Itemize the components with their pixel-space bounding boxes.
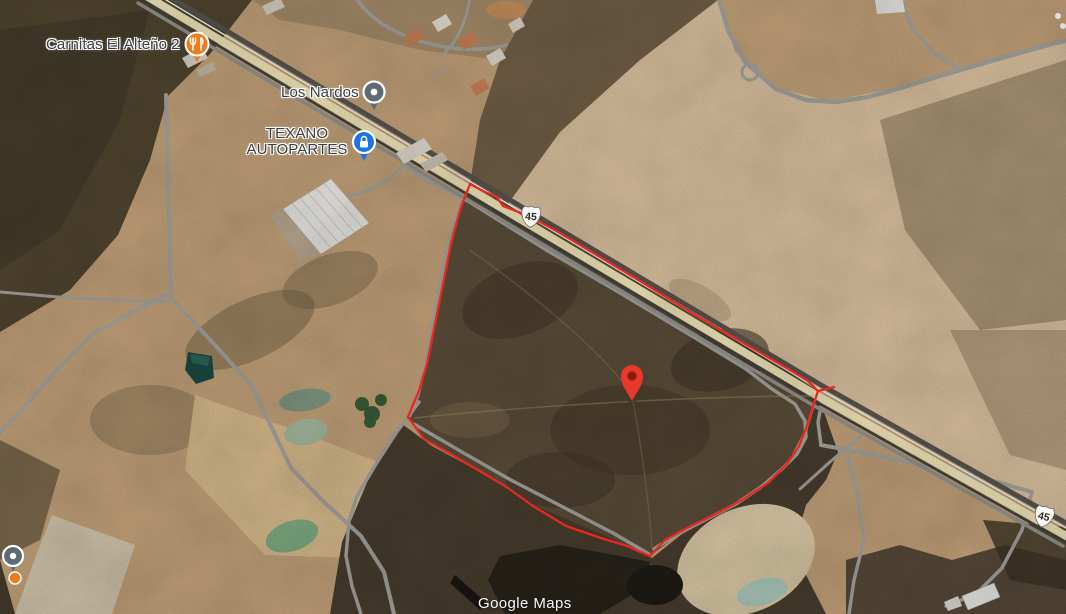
satellite-imagery: 45 45 — [0, 0, 1066, 614]
map-canvas[interactable]: 45 45 — [0, 0, 1066, 614]
dot-icon — [371, 89, 378, 96]
poi-label-carnitas[interactable]: Carnitas El Alteño 2 — [46, 36, 180, 53]
svg-text:45: 45 — [525, 211, 538, 224]
google-maps-watermark: Google Maps — [478, 595, 572, 612]
poi-label-line1: TEXANO — [244, 126, 350, 142]
poi-label-texano-autopartes[interactable]: TEXANO AUTOPARTES — [244, 126, 350, 158]
poi-label-line2: AUTOPARTES — [244, 142, 350, 158]
blotch-overlay — [0, 0, 1066, 614]
poi-label-los-nardos[interactable]: Los Nardos — [281, 84, 359, 101]
